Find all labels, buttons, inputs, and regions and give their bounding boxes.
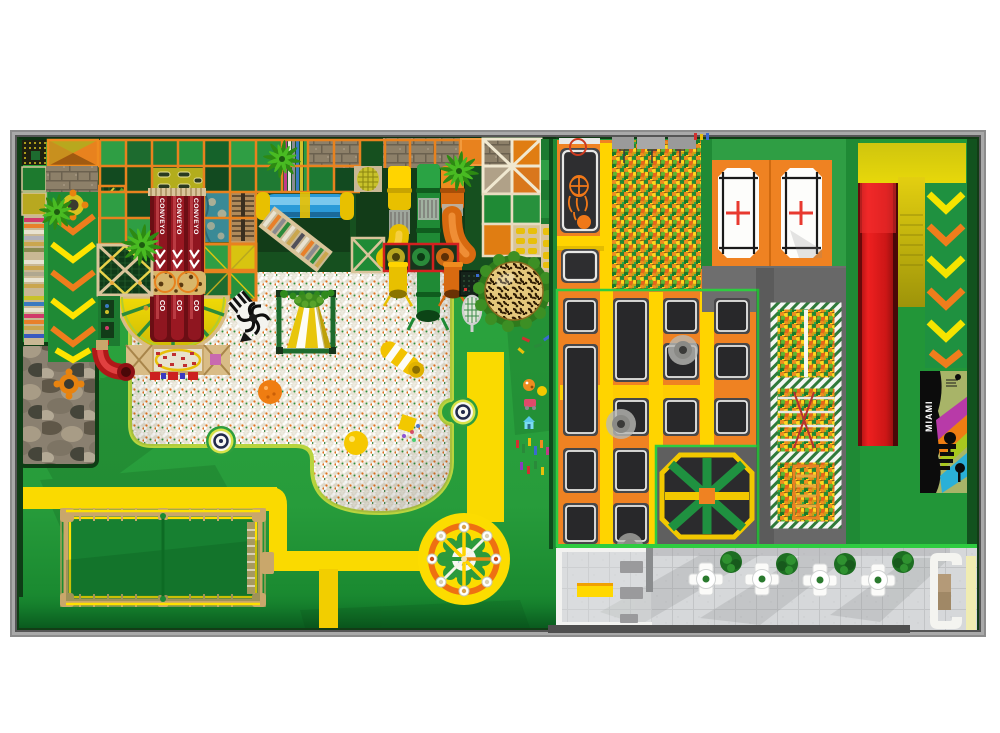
svg-text:CO: CO: [192, 300, 201, 311]
svg-text:CONVEYO: CONVEYO: [175, 198, 182, 235]
svg-text:MIAMI: MIAMI: [924, 401, 934, 433]
svg-text:CO: CO: [175, 300, 184, 311]
svg-text:CONVEYO: CONVEYO: [158, 198, 165, 235]
svg-text:CO: CO: [158, 300, 167, 311]
svg-text:CONVEYO: CONVEYO: [192, 198, 199, 235]
